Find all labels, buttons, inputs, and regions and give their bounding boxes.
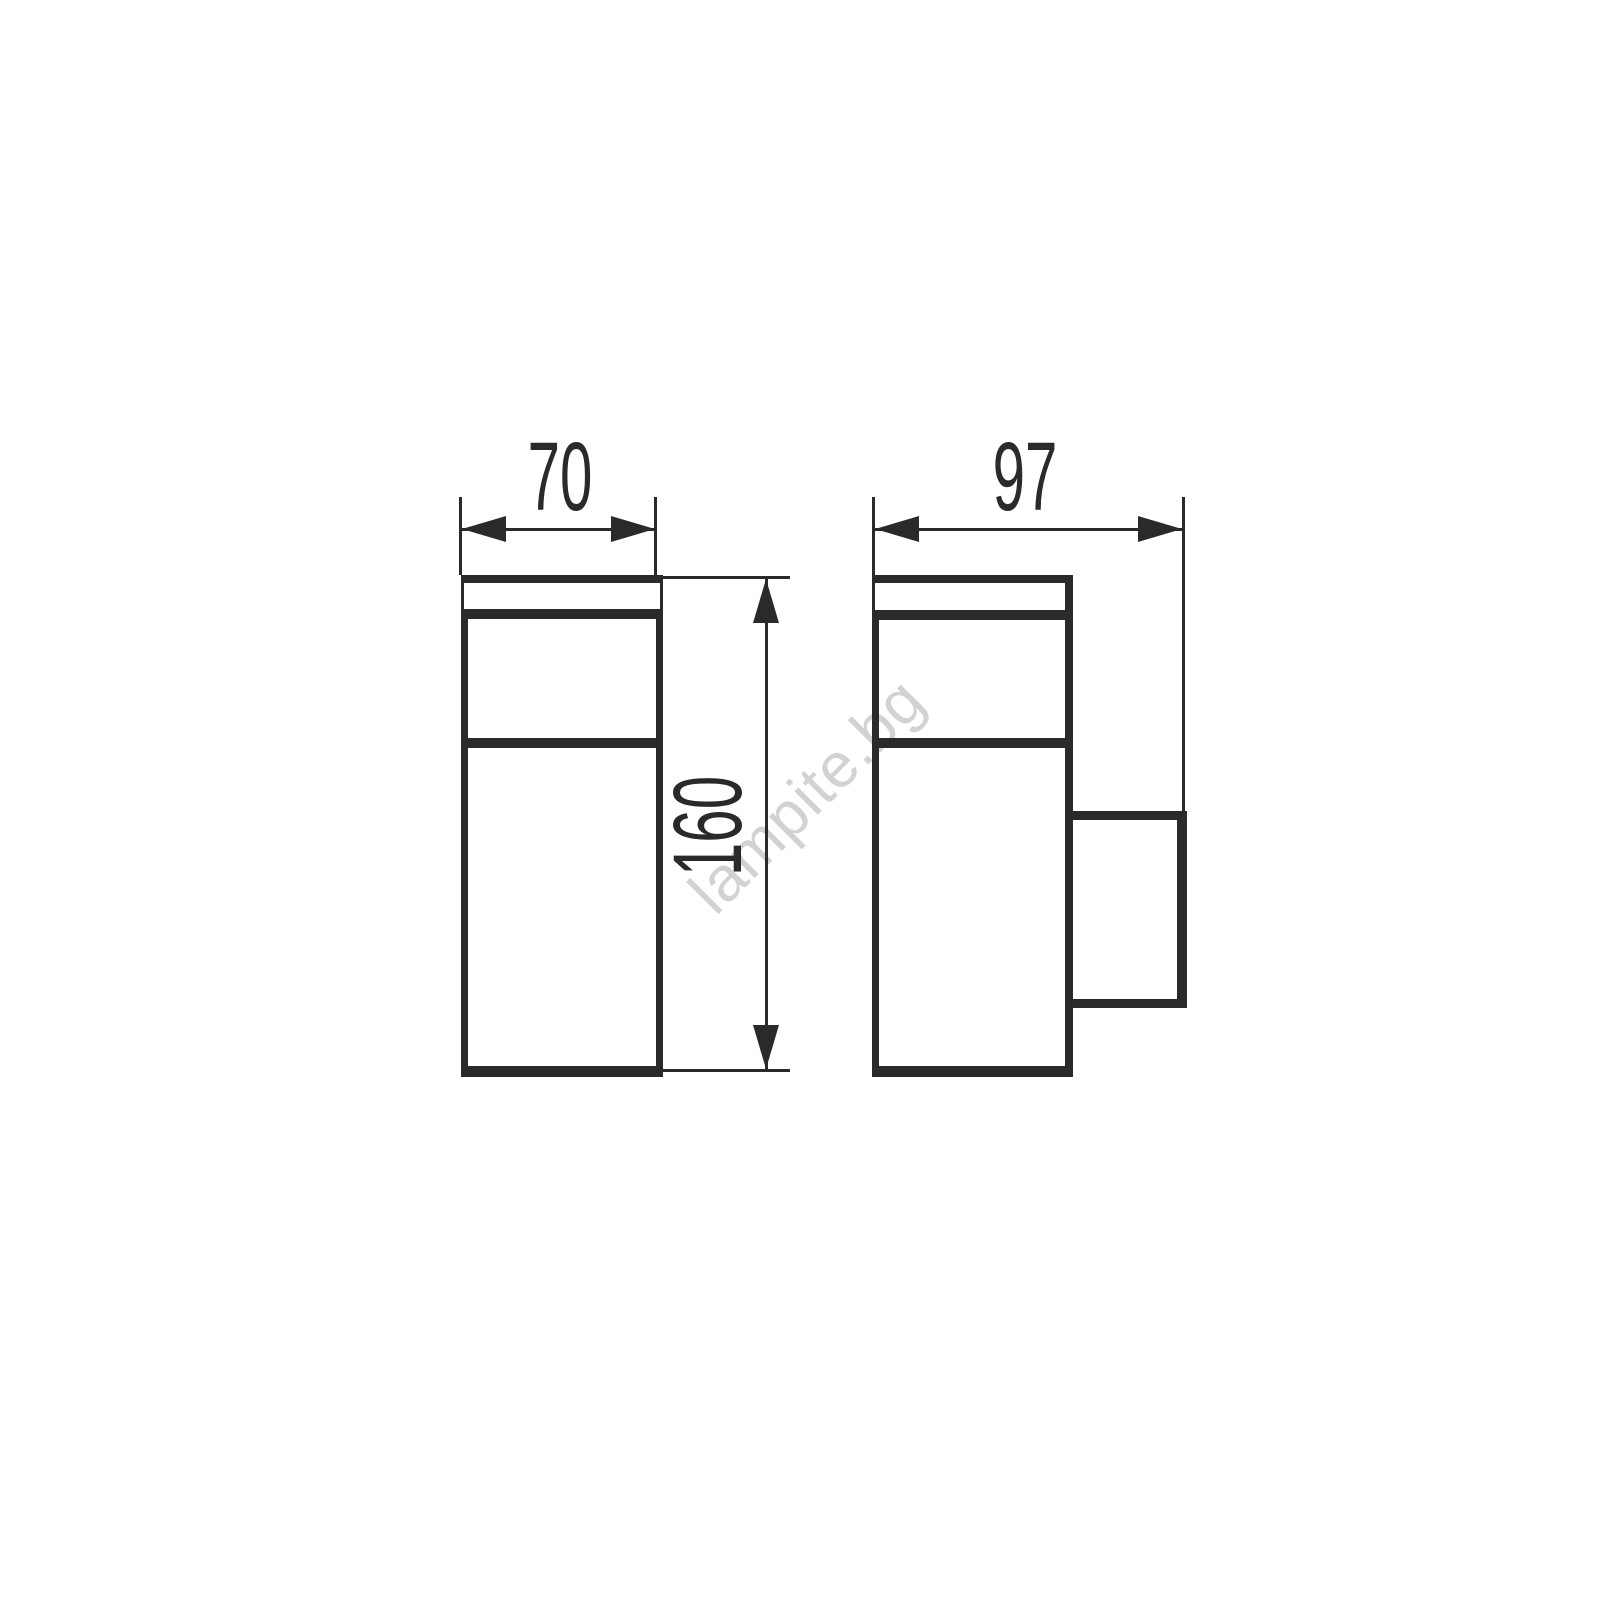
mount-box-bottom-line <box>1073 999 1187 1008</box>
depth-dimension-label: 97 <box>965 417 1085 537</box>
front-diffuser-separator-line <box>461 738 663 748</box>
arrowhead-160-bottom-icon <box>753 1025 779 1069</box>
extension-line-160-bottom <box>663 1069 790 1072</box>
front-left-edge-line <box>461 619 468 1077</box>
arrowhead-160-top-icon <box>753 579 779 623</box>
width-dimension-label: 70 <box>500 417 620 537</box>
front-cap-separator-line <box>461 609 663 619</box>
side-cap-separator-line <box>872 610 1073 620</box>
mount-box-top-line <box>1073 811 1187 820</box>
side-bottom-edge-line <box>872 1066 1073 1077</box>
technical-drawing-canvas: lampite.bg 70 <box>0 0 1599 1600</box>
side-left-edge-line <box>872 620 879 1077</box>
front-cap-left-thin-edge <box>461 583 464 609</box>
mount-box-right-line <box>1177 811 1187 1008</box>
side-diffuser-separator-line <box>872 738 1073 748</box>
side-cap-left-thin-edge <box>872 583 875 610</box>
arrowhead-97-right-icon <box>1138 516 1182 542</box>
side-right-edge-line <box>1065 575 1073 1077</box>
extension-line-97-right <box>1182 497 1185 811</box>
arrowhead-97-left-icon <box>875 516 919 542</box>
height-dimension-label: 160 <box>648 733 768 919</box>
front-bottom-edge-line <box>461 1066 663 1077</box>
front-cap-right-thin-edge <box>660 583 663 609</box>
front-top-edge-line <box>461 575 663 583</box>
side-top-edge-line <box>872 575 1073 583</box>
